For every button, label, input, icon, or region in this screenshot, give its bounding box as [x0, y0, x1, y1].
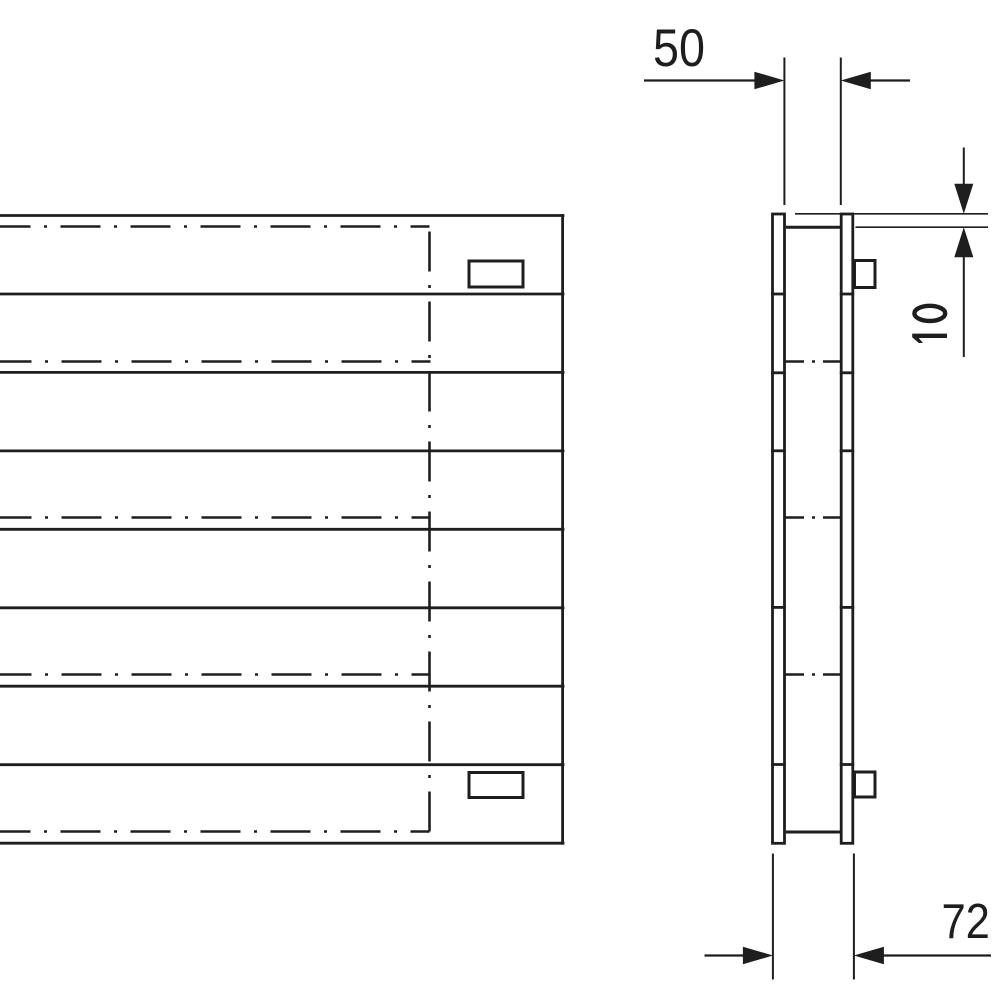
- svg-text:50: 50: [653, 19, 705, 78]
- svg-text:72: 72: [941, 895, 990, 949]
